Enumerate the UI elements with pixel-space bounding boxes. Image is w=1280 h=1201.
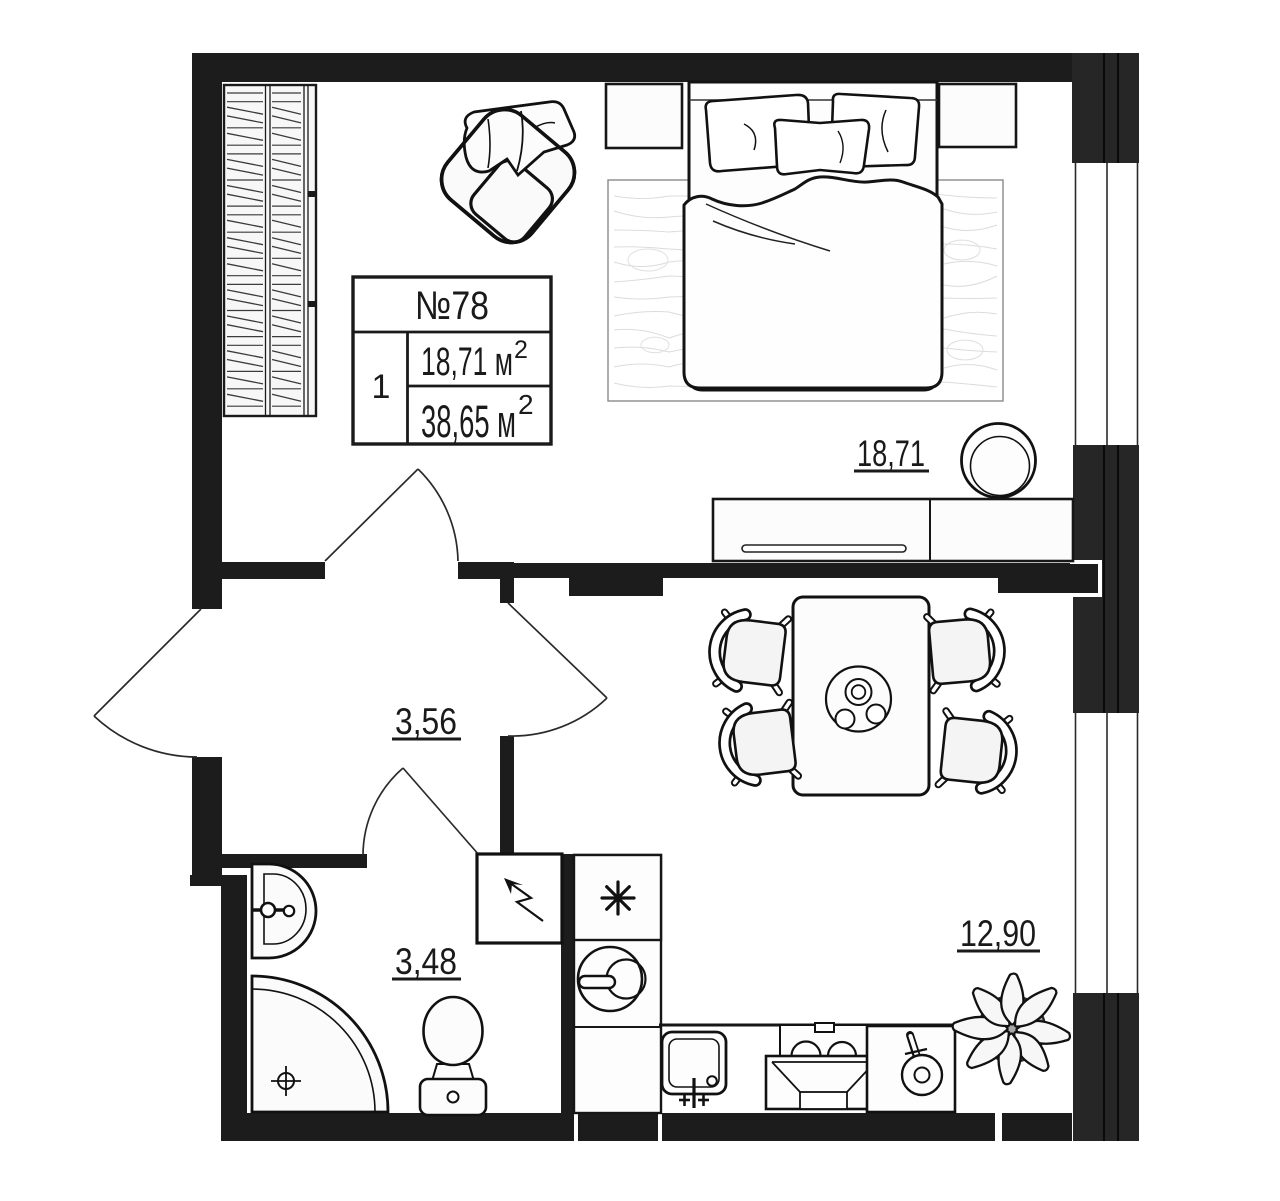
- svg-text:2: 2: [518, 389, 534, 420]
- svg-text:18,71: 18,71: [857, 432, 925, 474]
- svg-text:1: 1: [372, 368, 391, 406]
- svg-text:3,48: 3,48: [395, 940, 457, 982]
- svg-text:№78: №78: [415, 284, 489, 328]
- svg-text:12,90: 12,90: [960, 912, 1036, 954]
- svg-text:38,65 м: 38,65 м: [421, 396, 516, 447]
- svg-text:2: 2: [514, 336, 528, 364]
- svg-text:3,56: 3,56: [395, 700, 457, 742]
- svg-text:18,71 м: 18,71 м: [421, 340, 513, 384]
